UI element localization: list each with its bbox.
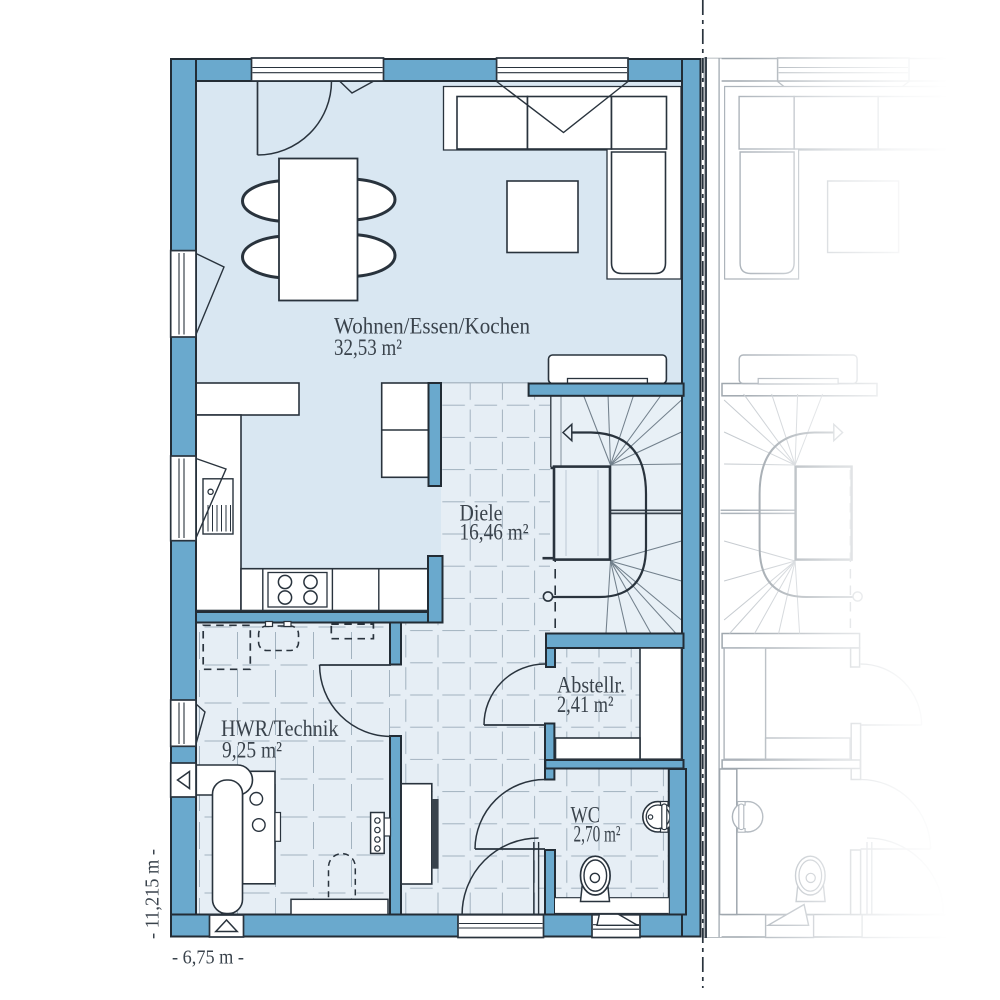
svg-text:16,46 m²: 16,46 m² [460, 520, 529, 545]
svg-text:2,70 m²: 2,70 m² [574, 822, 621, 847]
svg-text:32,53 m²: 32,53 m² [334, 335, 402, 360]
svg-text:- 11,215 m -: - 11,215 m - [142, 849, 164, 939]
svg-text:- 6,75 m -: - 6,75 m - [172, 947, 244, 969]
svg-text:9,25 m²: 9,25 m² [222, 738, 282, 763]
svg-text:2,41 m²: 2,41 m² [557, 692, 614, 717]
